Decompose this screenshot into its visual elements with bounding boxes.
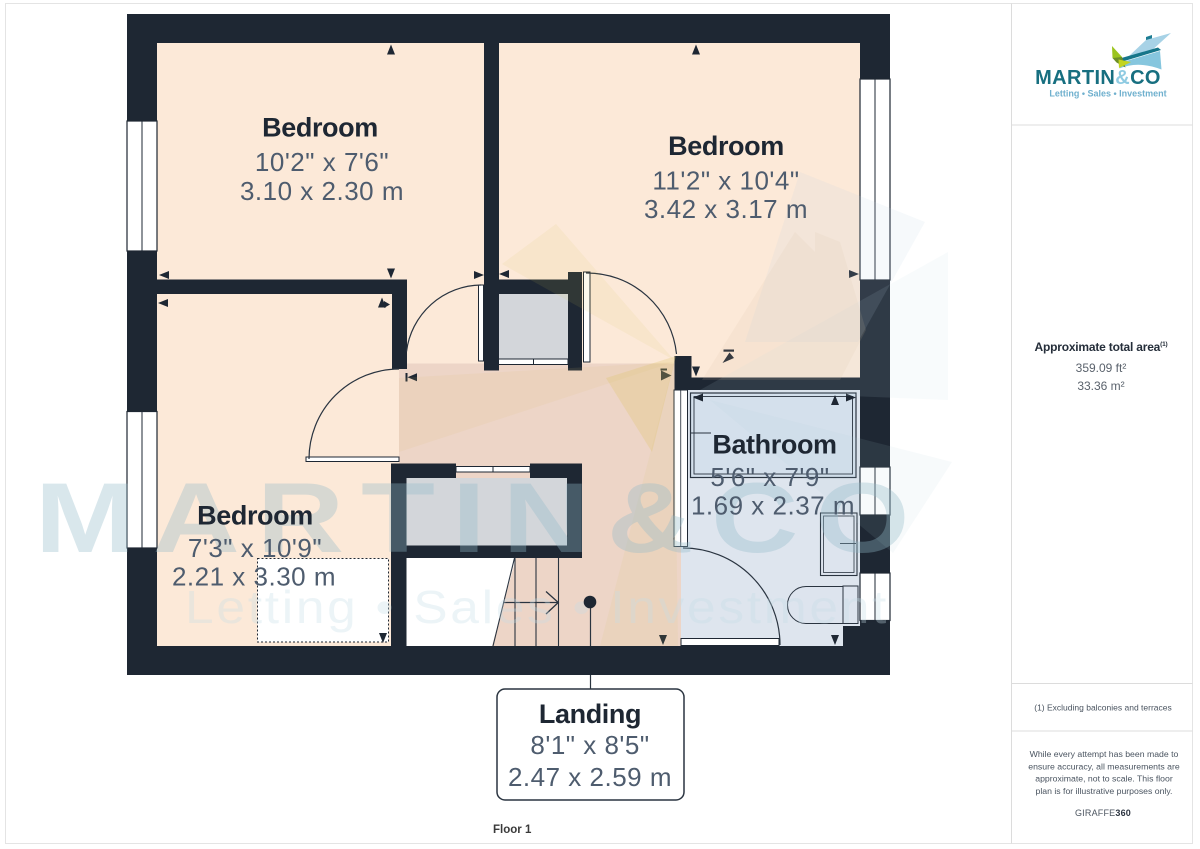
- svg-text:Floor 1: Floor 1: [493, 824, 532, 836]
- svg-text:5'6" x 7'9": 5'6" x 7'9": [710, 462, 829, 492]
- svg-text:Bedroom: Bedroom: [262, 113, 378, 143]
- svg-text:8'1" x 8'5": 8'1" x 8'5": [530, 730, 649, 760]
- svg-text:7'3" x 10'9": 7'3" x 10'9": [188, 533, 322, 563]
- svg-text:10'2" x 7'6": 10'2" x 7'6": [255, 147, 389, 177]
- svg-text:plan is for illustrative purpo: plan is for illustrative purposes only.: [1036, 786, 1173, 796]
- svg-text:3.10 x 2.30 m: 3.10 x 2.30 m: [240, 176, 404, 206]
- svg-text:(1) Excluding balconies and te: (1) Excluding balconies and terraces: [1034, 703, 1172, 713]
- svg-text:MARTIN&CO: MARTIN&CO: [1035, 67, 1161, 89]
- svg-text:Landing: Landing: [539, 699, 641, 729]
- svg-text:Approximate total area(1): Approximate total area(1): [1035, 340, 1168, 354]
- svg-text:While every attempt has been m: While every attempt has been made to: [1030, 749, 1179, 759]
- svg-text:3.42 x 3.17 m: 3.42 x 3.17 m: [644, 194, 808, 224]
- svg-text:2.21 x 3.30 m: 2.21 x 3.30 m: [172, 562, 336, 592]
- svg-text:Bedroom: Bedroom: [197, 501, 313, 531]
- svg-text:GIRAFFE360: GIRAFFE360: [1075, 808, 1131, 818]
- svg-text:Bedroom: Bedroom: [668, 131, 784, 161]
- svg-text:1.69 x 2.37 m: 1.69 x 2.37 m: [691, 491, 855, 521]
- svg-text:33.36 m²: 33.36 m²: [1077, 379, 1124, 393]
- svg-text:2.47 x 2.59 m: 2.47 x 2.59 m: [508, 762, 672, 792]
- svg-text:ensure accuracy, all measureme: ensure accuracy, all measurements are: [1028, 761, 1180, 771]
- svg-text:approximate, not to scale. Thi: approximate, not to scale. This floor: [1035, 774, 1173, 784]
- svg-text:11'2" x 10'4": 11'2" x 10'4": [652, 166, 799, 196]
- svg-text:359.09 ft²: 359.09 ft²: [1076, 361, 1127, 375]
- svg-text:Letting • Sales • Investment: Letting • Sales • Investment: [1049, 89, 1166, 99]
- svg-text:Bathroom: Bathroom: [712, 430, 836, 460]
